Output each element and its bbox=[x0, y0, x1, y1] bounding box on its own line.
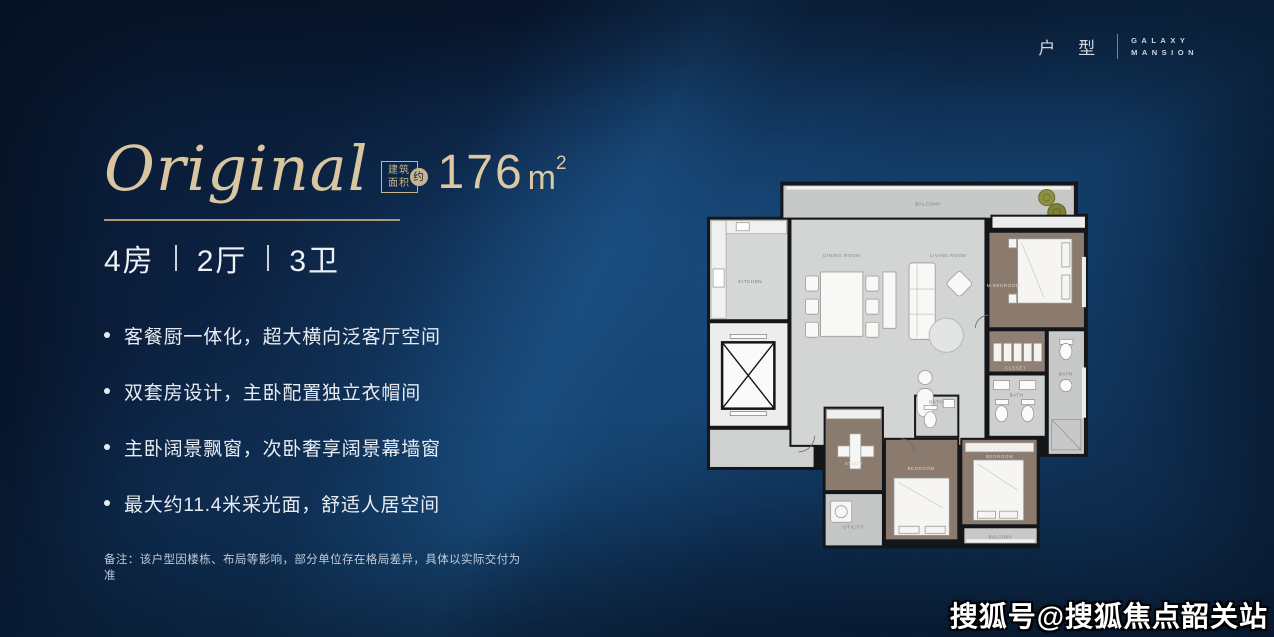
area-approx-circle: 约 bbox=[410, 168, 428, 186]
study-cabinet bbox=[827, 410, 881, 419]
gold-divider-line bbox=[104, 219, 400, 221]
beds-count: 4房 bbox=[104, 236, 155, 280]
feature-list: 客餐厨一体化，超大横向泛客厅空间 双套房设计，主卧配置独立衣帽间 主卧阔景飘窗，… bbox=[104, 322, 524, 517]
series-title: Original bbox=[104, 140, 369, 199]
area-tag-top: 建筑 bbox=[388, 165, 410, 177]
separator-bar bbox=[267, 245, 269, 271]
feature-item: 最大约11.4米采光面，舒适人居空间 bbox=[104, 490, 524, 517]
area-superscript: 2 bbox=[556, 154, 567, 173]
label-master: M.BEDROOM bbox=[987, 283, 1020, 288]
label-kitchen: KITCHEN bbox=[738, 279, 762, 284]
feature-text: 双套房设计，主卧配置独立衣帽间 bbox=[124, 378, 421, 405]
elevator-shaft bbox=[722, 334, 774, 415]
watermark: 搜狐号@搜狐焦点韶关站 bbox=[950, 595, 1268, 635]
separator-bar bbox=[175, 245, 177, 271]
feature-text: 最大约11.4米采光面，舒适人居空间 bbox=[124, 490, 440, 517]
bed-3 bbox=[973, 460, 1023, 520]
brand-name-top: GALAXY bbox=[1131, 36, 1198, 45]
marketing-slide: 户 型 GALAXY MANSION Original 建筑 面积 约 176 … bbox=[0, 0, 1274, 637]
unit-info-panel: Original 建筑 面积 约 176 m 2 4房 2厅 3卫 客餐厨一 bbox=[104, 140, 524, 583]
area-tag-bottom: 面积 bbox=[388, 178, 410, 190]
area-unit: m bbox=[528, 161, 556, 195]
label-balcony-2: BALCONY bbox=[989, 534, 1013, 539]
feature-item: 双套房设计，主卧配置独立衣帽间 bbox=[104, 378, 524, 405]
label-utility: UTILITY bbox=[843, 524, 864, 529]
bay-window bbox=[991, 216, 1085, 229]
brand-divider bbox=[1117, 34, 1118, 59]
feature-item: 主卧阔景飘窗，次卧奢享阔景幕墙窗 bbox=[104, 434, 524, 461]
room-summary: 4房 2厅 3卫 bbox=[104, 236, 524, 280]
bed-2 bbox=[894, 478, 949, 535]
window-strip bbox=[1082, 367, 1086, 417]
area-value: 176 bbox=[438, 149, 524, 197]
feature-text: 客餐厨一体化，超大横向泛客厅空间 bbox=[124, 322, 441, 349]
bullet-dot-icon bbox=[104, 388, 110, 394]
balcony-railing bbox=[786, 187, 1070, 190]
label-bedroom-3: BEDROOM bbox=[986, 454, 1013, 459]
feature-text: 主卧阔景飘窗，次卧奢享阔景幕墙窗 bbox=[124, 434, 441, 461]
label-bath-c: BATH bbox=[929, 400, 943, 405]
floorplan-svg: BALCONY KITCHEN DINING ROOM LIVING ROOM … bbox=[702, 176, 1094, 574]
window-strip bbox=[1082, 257, 1086, 307]
brand-category: 户 型 bbox=[1036, 34, 1104, 59]
balcony2-railing bbox=[966, 539, 1034, 542]
title-row: Original 建筑 面积 约 176 m 2 bbox=[104, 140, 524, 199]
baths-count: 3卫 bbox=[289, 236, 340, 280]
label-closet: CLOSET bbox=[1005, 365, 1026, 370]
side-table bbox=[918, 370, 932, 384]
label-study: STUDY bbox=[845, 461, 863, 466]
bullet-dot-icon bbox=[104, 500, 110, 506]
label-balcony: BALCONY bbox=[915, 202, 941, 207]
closet-wardrobe bbox=[993, 343, 1041, 361]
brand-lockup: 户 型 GALAXY MANSION bbox=[1036, 34, 1198, 59]
floorplan: BALCONY KITCHEN DINING ROOM LIVING ROOM … bbox=[702, 176, 1094, 574]
bullet-dot-icon bbox=[104, 332, 110, 338]
label-bedroom-2: BEDROOM bbox=[907, 466, 934, 471]
master-bed bbox=[1009, 239, 1072, 303]
brand-name: GALAXY MANSION bbox=[1131, 36, 1198, 57]
label-living: LIVING ROOM bbox=[930, 253, 966, 258]
utility-washer bbox=[831, 501, 852, 522]
area-badge: 建筑 面积 约 bbox=[381, 161, 418, 193]
feature-item: 客餐厨一体化，超大横向泛客厅空间 bbox=[104, 322, 524, 349]
brand-name-bottom: MANSION bbox=[1131, 48, 1198, 57]
disclaimer-note: 备注：该户型因楼栋、布局等影响，部分单位存在格局差异，具体以实际交付为准 bbox=[104, 551, 524, 583]
bedroom3-wardrobe bbox=[965, 443, 1033, 452]
label-dining: DINING ROOM bbox=[823, 253, 860, 258]
bullet-dot-icon bbox=[104, 444, 110, 450]
label-bath-a: BATH bbox=[1010, 393, 1024, 398]
halls-count: 2厅 bbox=[197, 236, 248, 280]
label-bath-b: BATH bbox=[1059, 372, 1073, 377]
rug bbox=[929, 318, 963, 352]
